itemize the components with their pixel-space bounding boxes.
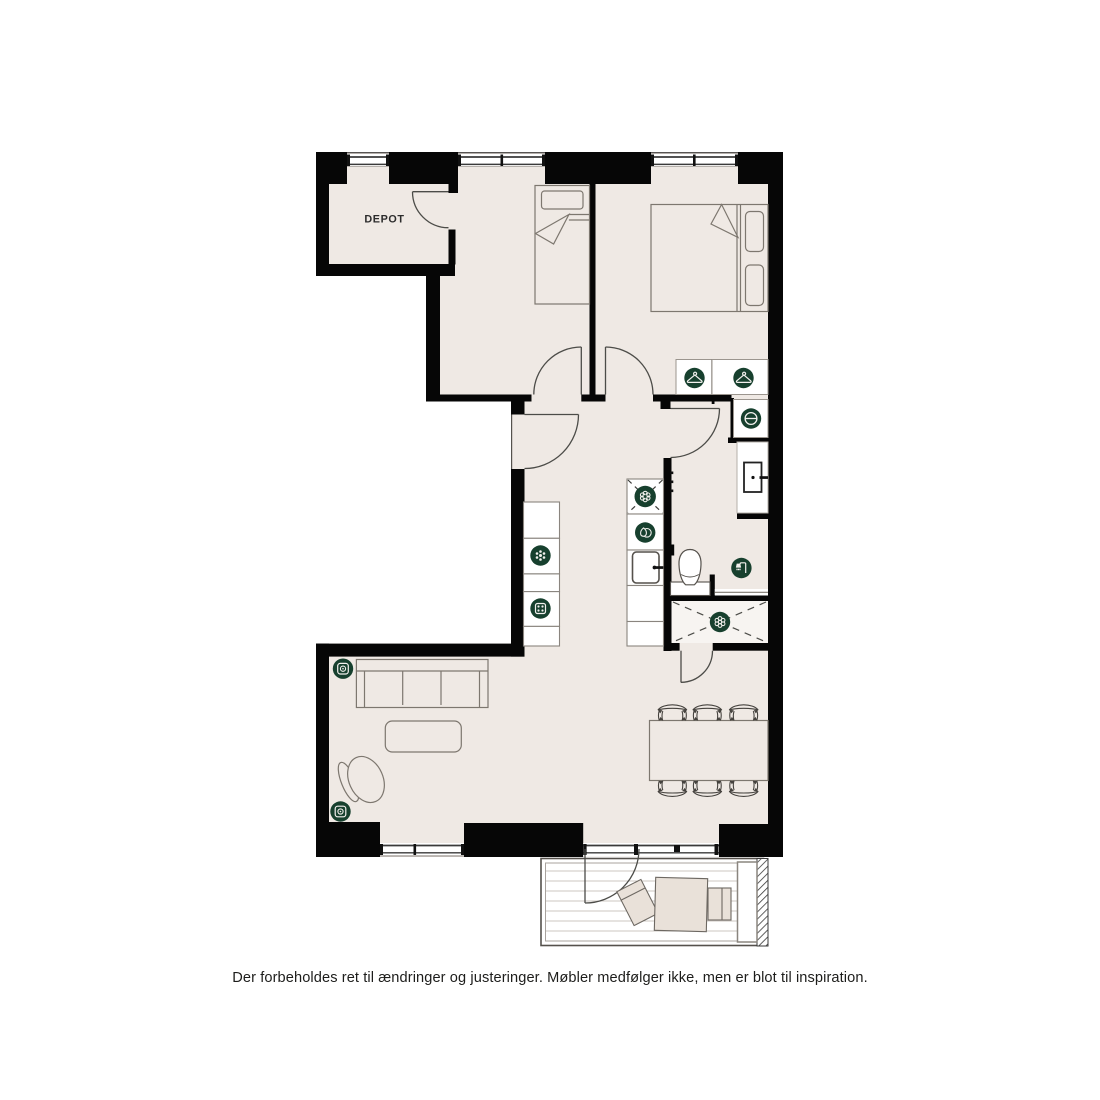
svg-text:Der forbeholdes ret til ændrin: Der forbeholdes ret til ændringer og jus… xyxy=(232,970,867,986)
svg-text:DEPOT: DEPOT xyxy=(364,214,404,226)
